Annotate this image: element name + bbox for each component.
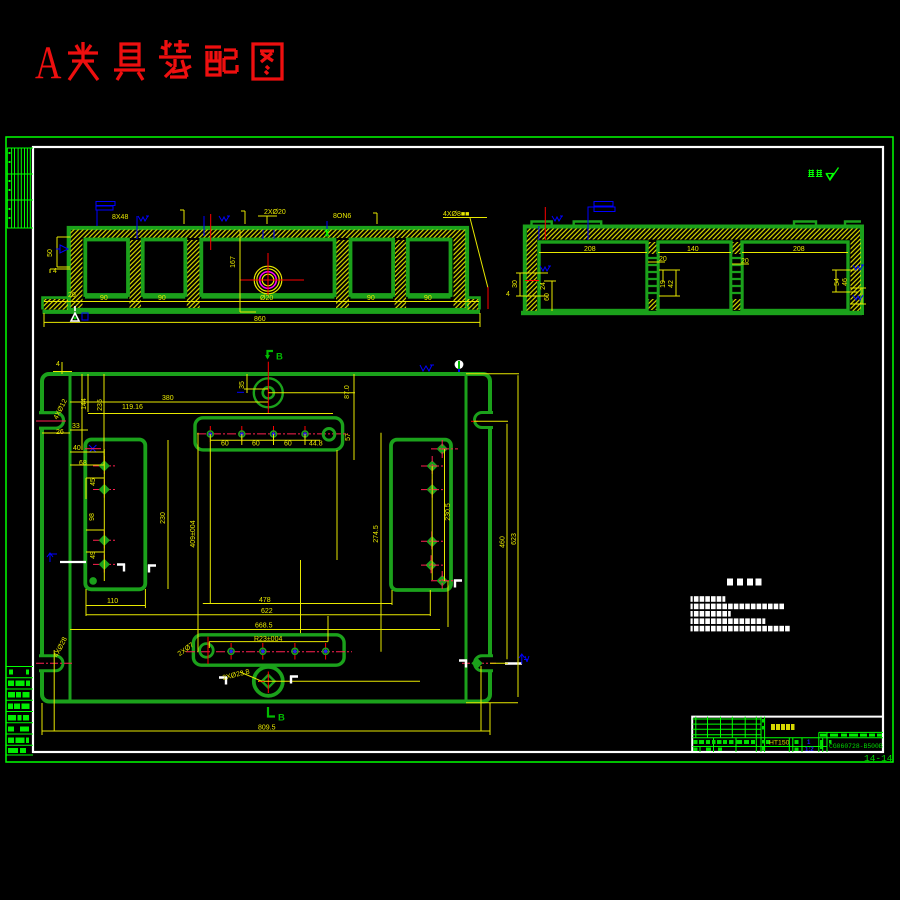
svg-text:50: 50	[47, 249, 54, 257]
svg-text:B: B	[278, 713, 285, 724]
svg-text:90: 90	[100, 295, 108, 302]
svg-text:54: 54	[834, 278, 841, 286]
svg-text:8X48: 8X48	[112, 214, 128, 221]
svg-text:30: 30	[512, 280, 519, 288]
svg-text:230: 230	[160, 512, 167, 524]
svg-text:20: 20	[68, 292, 76, 299]
svg-text:8ON6: 8ON6	[333, 213, 351, 220]
svg-text:60: 60	[284, 441, 292, 448]
svg-text:4XØ8■■: 4XØ8■■	[443, 211, 469, 218]
svg-text:68: 68	[79, 460, 87, 467]
svg-text:35: 35	[239, 381, 246, 389]
svg-text:46: 46	[842, 278, 849, 286]
svg-text:110: 110	[107, 598, 118, 605]
svg-text:208: 208	[584, 246, 596, 253]
svg-text:B: B	[276, 352, 283, 363]
svg-text:42: 42	[668, 280, 675, 288]
svg-text:274.5: 274.5	[373, 525, 380, 543]
svg-text:409±004: 409±004	[190, 520, 197, 547]
svg-text:24: 24	[540, 282, 547, 290]
svg-text:60: 60	[221, 441, 229, 448]
svg-text:2XØ20: 2XØ20	[264, 209, 286, 216]
svg-text:460: 460	[500, 536, 507, 548]
svg-text:26: 26	[56, 429, 64, 436]
svg-text:98: 98	[89, 513, 96, 521]
svg-text:14-14: 14-14	[864, 753, 893, 764]
svg-text:44.8: 44.8	[309, 441, 323, 448]
svg-text:90: 90	[424, 295, 432, 302]
svg-text:87.0: 87.0	[344, 385, 351, 399]
svg-text:380: 380	[162, 395, 174, 402]
svg-text:19: 19	[660, 280, 667, 288]
svg-text:4: 4	[53, 268, 57, 275]
svg-text:623: 623	[511, 533, 518, 545]
svg-text:230.5: 230.5	[445, 503, 452, 521]
svg-text:4: 4	[56, 361, 60, 368]
svg-text:235: 235	[97, 399, 104, 411]
svg-text:140: 140	[687, 246, 699, 253]
svg-text:HT150: HT150	[769, 740, 790, 747]
svg-text:CG060728-B500B: CG060728-B500B	[829, 743, 883, 750]
svg-text:20: 20	[659, 256, 667, 263]
svg-text:60: 60	[544, 293, 551, 301]
svg-text:1:2: 1:2	[805, 747, 814, 753]
svg-text:45: 45	[90, 478, 97, 486]
svg-text:60: 60	[252, 441, 260, 448]
svg-text:809.5: 809.5	[258, 725, 276, 732]
svg-text:90: 90	[367, 295, 375, 302]
svg-text:57: 57	[345, 433, 352, 441]
svg-text:668.5: 668.5	[255, 623, 273, 630]
svg-text:40: 40	[73, 445, 81, 452]
svg-text:R23±004: R23±004	[254, 636, 282, 643]
svg-text:20: 20	[741, 258, 749, 265]
svg-text:478: 478	[259, 597, 271, 604]
svg-text:167: 167	[230, 256, 237, 268]
svg-text:Ø20: Ø20	[260, 295, 273, 302]
svg-text:49: 49	[90, 551, 97, 559]
svg-text:622: 622	[261, 608, 273, 615]
svg-text:4: 4	[506, 291, 510, 298]
svg-text:860: 860	[254, 316, 266, 323]
svg-text:33: 33	[72, 423, 80, 430]
svg-text:144: 144	[81, 398, 88, 410]
svg-text:90: 90	[158, 295, 166, 302]
svg-text:119.16: 119.16	[122, 404, 143, 411]
svg-text:A: A	[35, 37, 62, 89]
svg-text:208: 208	[793, 246, 805, 253]
